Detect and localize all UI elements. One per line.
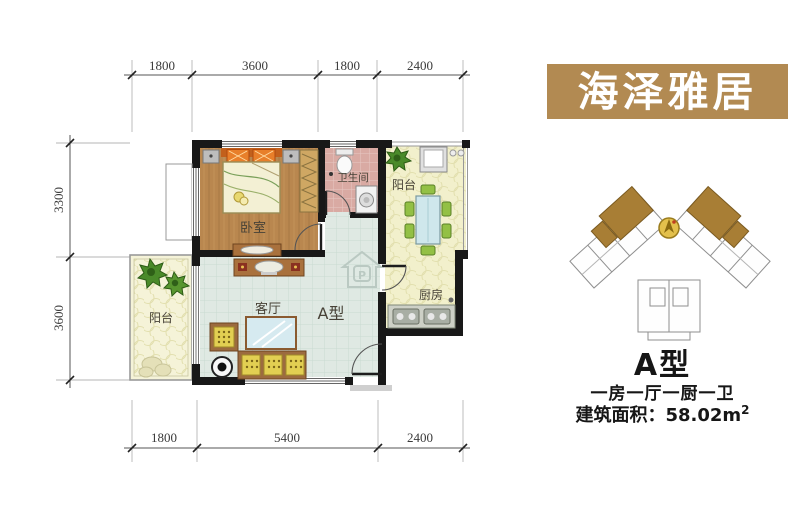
dim-top-3: 1800 — [334, 58, 360, 73]
label-living: 客厅 — [255, 301, 281, 317]
dimension-lines-left: 3300 3600 — [51, 135, 130, 388]
compass-icon — [659, 218, 679, 238]
tv — [255, 261, 283, 273]
label-kitchen: 厨房 — [419, 287, 443, 302]
watermark-letter: P — [358, 269, 366, 282]
label-unit-type: A型 — [318, 304, 345, 323]
unit-area-text: 建筑面积：58.02m2 — [555, 401, 770, 427]
site-key-plan — [561, 187, 780, 340]
dim-top-2: 3600 — [242, 58, 268, 73]
bay-window — [166, 164, 192, 240]
area-value: 建筑面积：58.02m — [575, 405, 741, 426]
label-balcony-left: 阳台 — [149, 310, 173, 325]
toilet-tank — [336, 149, 353, 155]
unit-type-heading: A型 — [555, 340, 770, 384]
label-bathroom: 卫生间 — [337, 171, 369, 184]
project-title: 海泽雅居 — [578, 68, 758, 116]
dim-left-2: 3600 — [51, 305, 66, 331]
dim-left-1: 3300 — [51, 187, 66, 213]
dim-bottom-1: 1800 — [151, 430, 177, 445]
dim-top-1: 1800 — [149, 58, 175, 73]
dimension-lines-bottom: 1800 5400 2400 — [124, 400, 470, 462]
dim-top-4: 2400 — [407, 58, 433, 73]
dim-bottom-3: 2400 — [407, 430, 433, 445]
dimension-lines-top: 1800 3600 1800 2400 — [124, 58, 470, 132]
label-balcony-top: 阳台 — [392, 177, 416, 192]
label-bedroom: 卧室 — [240, 220, 266, 236]
dim-bottom-2: 5400 — [274, 430, 300, 445]
area-superscript: 2 — [741, 403, 749, 417]
project-title-banner: 海泽雅居 — [547, 64, 788, 119]
